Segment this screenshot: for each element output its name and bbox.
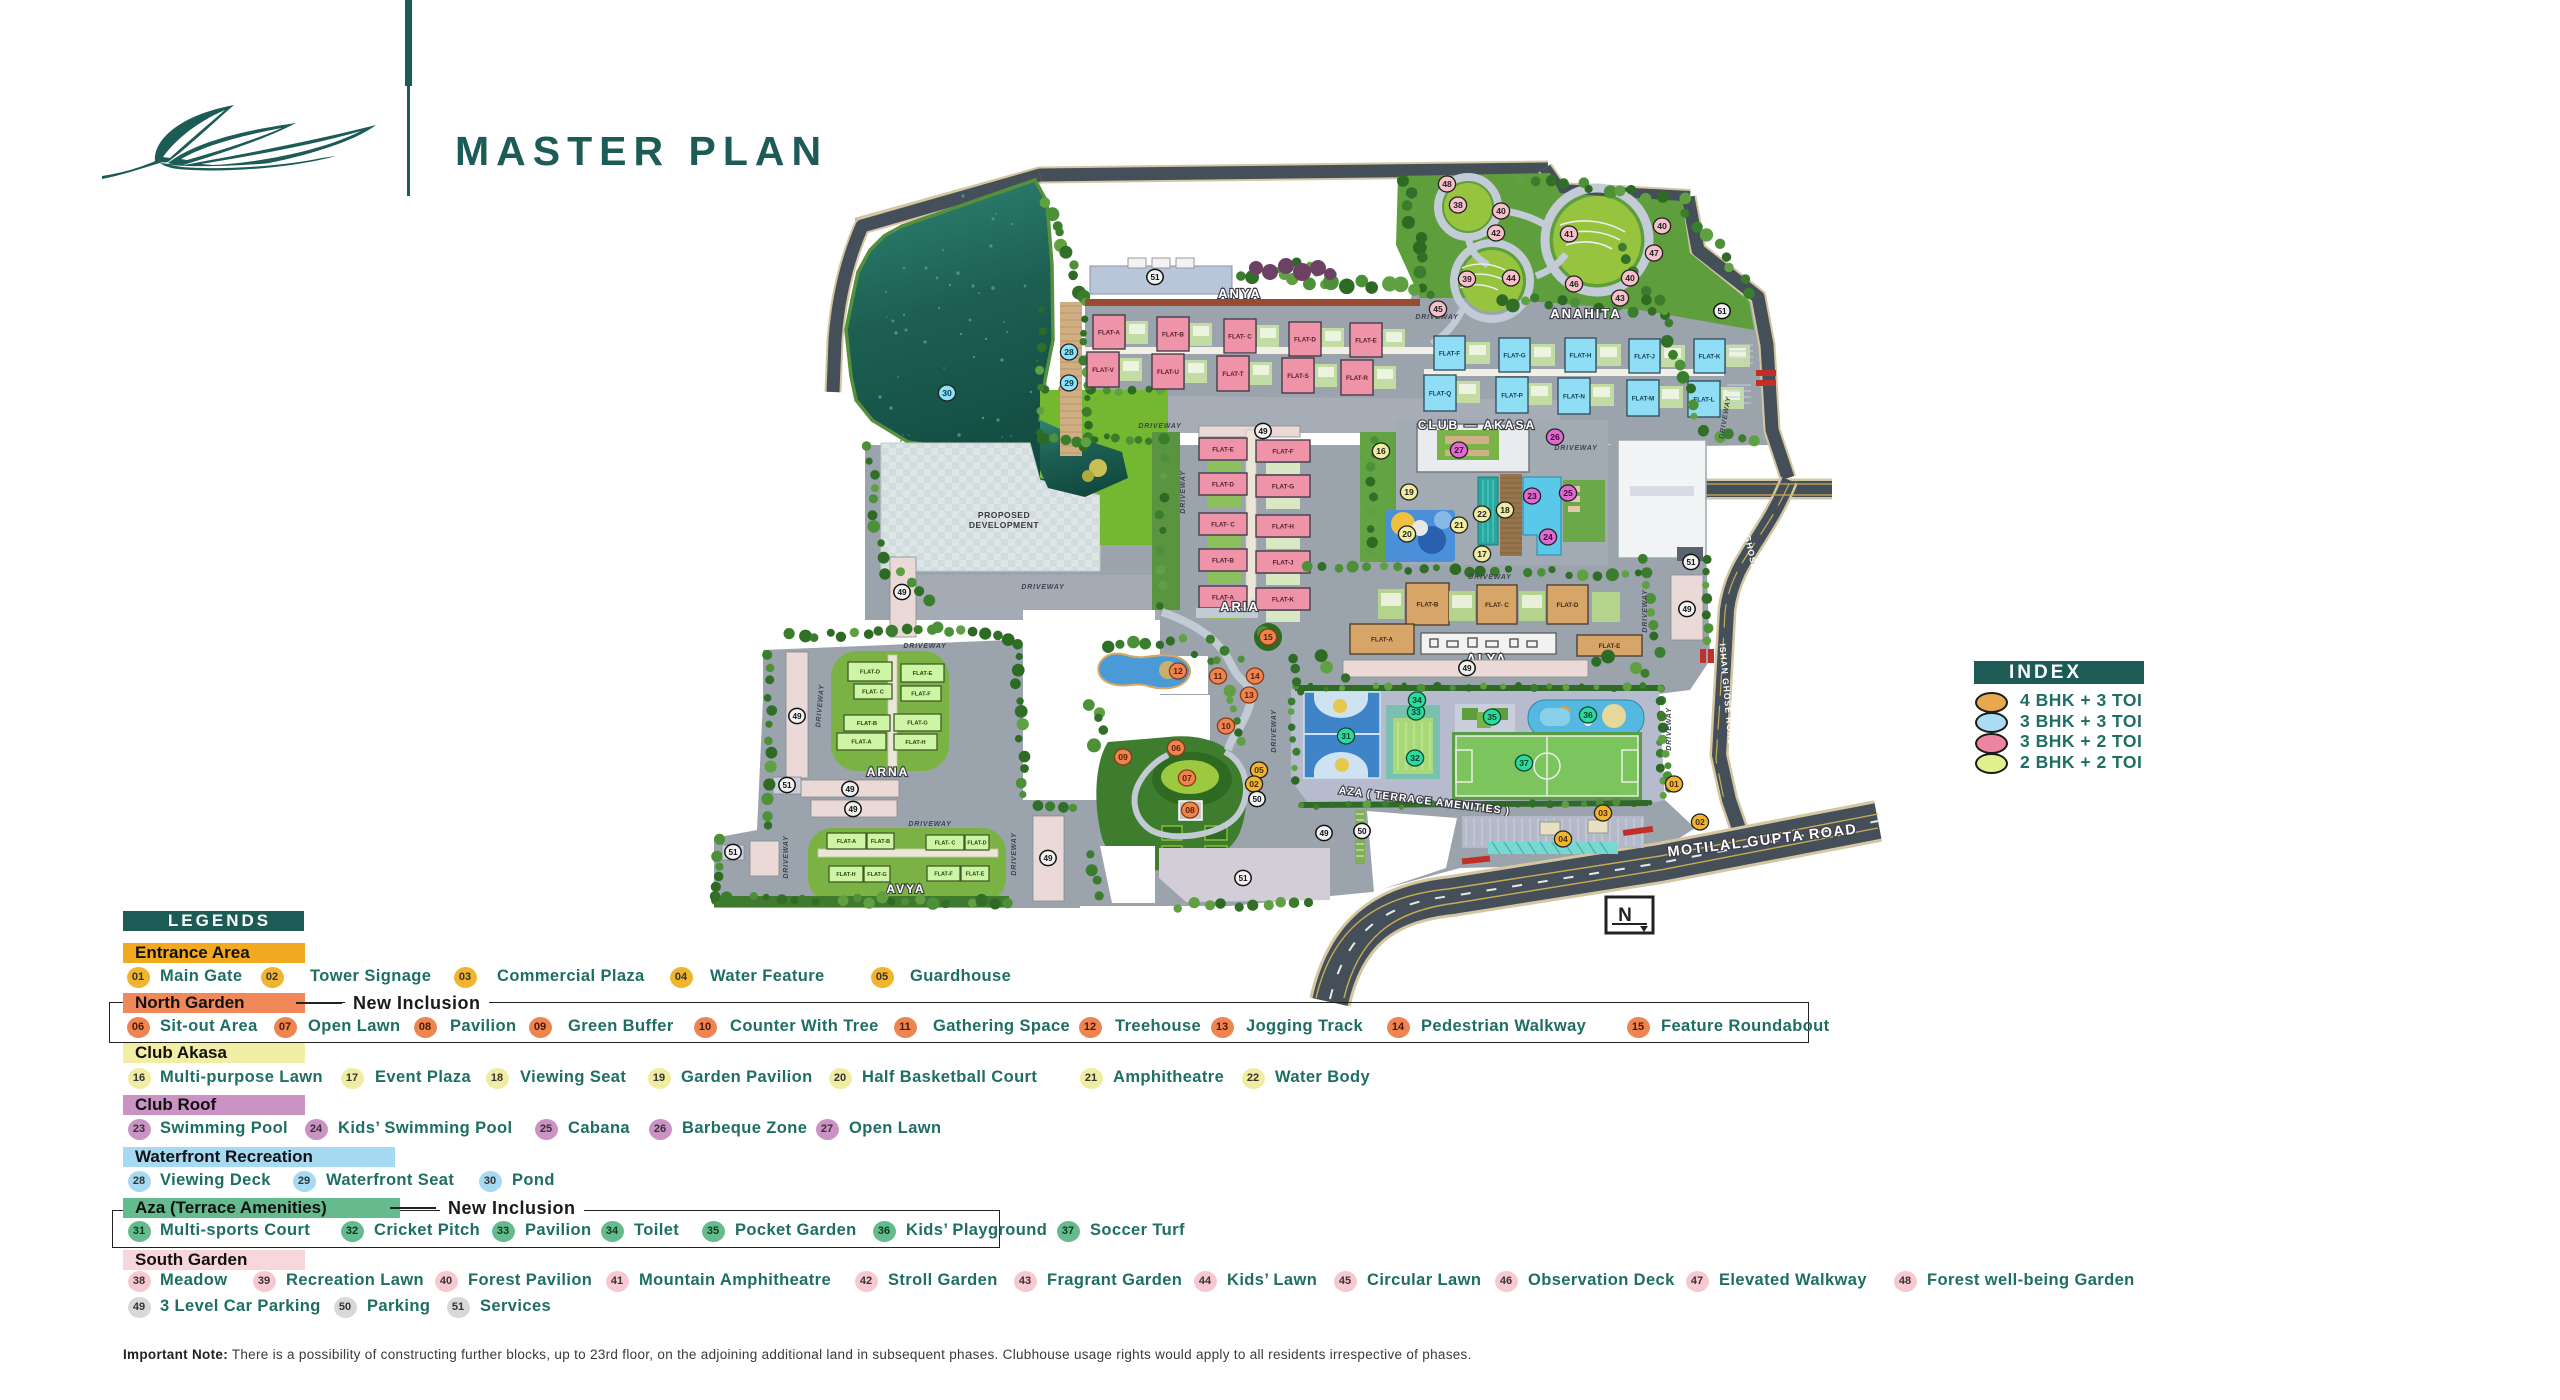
- svg-text:14: 14: [1250, 671, 1260, 681]
- svg-text:FLAT-R: FLAT-R: [1346, 375, 1368, 382]
- svg-text:ARNA: ARNA: [867, 765, 910, 779]
- svg-text:47: 47: [1649, 248, 1659, 258]
- svg-text:FLAT-A: FLAT-A: [837, 839, 856, 845]
- svg-text:FLAT-E: FLAT-E: [913, 671, 933, 677]
- svg-text:51: 51: [1686, 558, 1696, 567]
- svg-text:38: 38: [1453, 200, 1463, 210]
- svg-text:FLAT-U: FLAT-U: [1157, 369, 1179, 376]
- svg-text:08: 08: [1185, 805, 1195, 815]
- svg-text:ANAHITA: ANAHITA: [1550, 306, 1622, 321]
- svg-text:FLAT-B: FLAT-B: [1162, 331, 1184, 338]
- svg-text:03: 03: [1598, 808, 1608, 818]
- svg-text:ARIA: ARIA: [1220, 599, 1260, 614]
- svg-text:FLAT- C: FLAT- C: [862, 690, 885, 696]
- svg-text:DRIVEWAY: DRIVEWAY: [783, 835, 790, 879]
- svg-text:FLAT-G: FLAT-G: [867, 872, 886, 878]
- svg-text:FLAT-H: FLAT-H: [1570, 352, 1592, 359]
- svg-text:50: 50: [1252, 795, 1262, 804]
- svg-text:18: 18: [1500, 505, 1510, 515]
- svg-text:09: 09: [1118, 752, 1128, 762]
- svg-text:51: 51: [1717, 307, 1727, 316]
- svg-text:FLAT-G: FLAT-G: [1503, 352, 1525, 359]
- svg-text:39: 39: [1462, 274, 1472, 284]
- svg-text:51: 51: [1238, 874, 1248, 883]
- svg-text:23: 23: [1527, 491, 1537, 501]
- svg-text:12: 12: [1173, 666, 1183, 676]
- svg-text:49: 49: [792, 712, 802, 721]
- svg-text:AVYA: AVYA: [886, 882, 925, 896]
- svg-text:43: 43: [1615, 293, 1625, 303]
- svg-text:35: 35: [1487, 712, 1497, 722]
- svg-text:20: 20: [1402, 529, 1412, 539]
- svg-text:40: 40: [1496, 206, 1506, 216]
- svg-text:FLAT-H: FLAT-H: [905, 740, 925, 746]
- svg-text:40: 40: [1625, 273, 1635, 283]
- svg-text:FLAT-F: FLAT-F: [934, 872, 953, 878]
- svg-text:22: 22: [1477, 509, 1487, 519]
- svg-text:26: 26: [1550, 432, 1560, 442]
- svg-text:05: 05: [1254, 765, 1264, 775]
- svg-text:FLAT- C: FLAT- C: [935, 841, 956, 847]
- svg-text:FLAT-G: FLAT-G: [907, 721, 928, 727]
- svg-text:DRIVEWAY: DRIVEWAY: [1138, 423, 1182, 430]
- svg-text:19: 19: [1404, 487, 1414, 497]
- svg-text:24: 24: [1543, 532, 1553, 542]
- svg-text:FLAT-D: FLAT-D: [967, 841, 986, 847]
- svg-text:FLAT-G: FLAT-G: [1272, 483, 1294, 490]
- svg-text:FLAT-K: FLAT-K: [1272, 596, 1294, 603]
- svg-text:37: 37: [1519, 758, 1529, 768]
- svg-text:16: 16: [1376, 446, 1386, 456]
- svg-text:DRIVEWAY: DRIVEWAY: [1468, 574, 1512, 581]
- svg-text:DRIVEWAY: DRIVEWAY: [908, 821, 952, 828]
- svg-text:49: 49: [1043, 854, 1053, 863]
- svg-text:51: 51: [1150, 273, 1160, 282]
- svg-text:49: 49: [848, 805, 858, 814]
- svg-text:42: 42: [1491, 228, 1501, 238]
- svg-text:44: 44: [1506, 273, 1516, 283]
- svg-text:51: 51: [728, 848, 738, 857]
- svg-text:FLAT-B: FLAT-B: [871, 839, 890, 845]
- svg-text:ANYA: ANYA: [1218, 286, 1262, 301]
- svg-text:10: 10: [1221, 721, 1231, 731]
- svg-text:17: 17: [1477, 549, 1487, 559]
- svg-text:FLAT- C: FLAT- C: [1228, 333, 1252, 340]
- svg-text:FLAT-V: FLAT-V: [1092, 367, 1114, 374]
- svg-text:49: 49: [1258, 427, 1268, 436]
- svg-text:45: 45: [1433, 304, 1443, 314]
- svg-text:FLAT-P: FLAT-P: [1501, 392, 1523, 399]
- svg-text:34: 34: [1412, 695, 1422, 705]
- svg-text:FLAT-D: FLAT-D: [1557, 602, 1579, 609]
- svg-text:40: 40: [1657, 221, 1667, 231]
- svg-text:FLAT-A: FLAT-A: [1098, 329, 1120, 336]
- svg-text:FLAT-B: FLAT-B: [857, 721, 877, 727]
- svg-text:49: 49: [1462, 664, 1472, 673]
- svg-text:PROPOSED: PROPOSED: [978, 510, 1030, 520]
- svg-text:15: 15: [1263, 632, 1273, 642]
- svg-text:46: 46: [1569, 279, 1579, 289]
- svg-text:N: N: [1618, 905, 1632, 926]
- svg-text:02: 02: [1695, 817, 1705, 827]
- svg-text:FLAT-H: FLAT-H: [836, 872, 855, 878]
- svg-text:29: 29: [1064, 378, 1074, 388]
- svg-text:28: 28: [1064, 347, 1074, 357]
- svg-text:25: 25: [1563, 488, 1573, 498]
- svg-text:FLAT-D: FLAT-D: [860, 670, 880, 676]
- svg-text:51: 51: [782, 781, 792, 790]
- svg-text:FLAT-E: FLAT-E: [1355, 337, 1377, 344]
- svg-text:FLAT-H: FLAT-H: [1272, 523, 1294, 530]
- svg-text:49: 49: [897, 588, 907, 597]
- svg-text:DRIVEWAY: DRIVEWAY: [1180, 470, 1187, 514]
- svg-text:31: 31: [1341, 731, 1351, 741]
- svg-text:49: 49: [1319, 829, 1329, 838]
- svg-text:FLAT-Q: FLAT-Q: [1429, 390, 1451, 397]
- svg-text:06: 06: [1171, 743, 1181, 753]
- svg-text:FLAT-D: FLAT-D: [1294, 336, 1316, 343]
- svg-text:DEVELOPMENT: DEVELOPMENT: [969, 520, 1040, 530]
- svg-text:FLAT-K: FLAT-K: [1699, 353, 1721, 360]
- svg-text:FLAT-D: FLAT-D: [1212, 481, 1234, 488]
- svg-text:41: 41: [1564, 229, 1574, 239]
- svg-text:FLAT-B: FLAT-B: [1417, 601, 1439, 608]
- svg-text:DRIVEWAY: DRIVEWAY: [1021, 584, 1065, 591]
- svg-text:FLAT-J: FLAT-J: [1273, 559, 1294, 566]
- svg-text:02: 02: [1249, 779, 1259, 789]
- svg-text:FLAT-E: FLAT-E: [966, 872, 985, 878]
- svg-text:27: 27: [1454, 445, 1464, 455]
- svg-text:FLAT- C: FLAT- C: [1485, 602, 1509, 609]
- svg-text:49: 49: [845, 785, 855, 794]
- svg-text:DRIVEWAY: DRIVEWAY: [1554, 445, 1598, 452]
- svg-text:04: 04: [1558, 834, 1568, 844]
- svg-text:49: 49: [1682, 605, 1692, 614]
- svg-text:DRIVEWAY: DRIVEWAY: [1271, 709, 1278, 753]
- svg-text:FLAT-S: FLAT-S: [1287, 373, 1309, 380]
- svg-text:FLAT-N: FLAT-N: [1563, 393, 1585, 400]
- svg-text:FLAT-J: FLAT-J: [1634, 353, 1655, 360]
- svg-text:FLAT- C: FLAT- C: [1211, 521, 1235, 528]
- svg-text:FLAT-E: FLAT-E: [1599, 643, 1621, 650]
- svg-text:FLAT-E: FLAT-E: [1212, 446, 1234, 453]
- svg-text:FLAT-F: FLAT-F: [1272, 448, 1293, 455]
- svg-text:DRIVEWAY: DRIVEWAY: [1666, 707, 1673, 751]
- svg-text:13: 13: [1244, 690, 1254, 700]
- svg-text:30: 30: [942, 388, 952, 398]
- svg-text:32: 32: [1410, 753, 1420, 763]
- svg-text:FLAT-T: FLAT-T: [1222, 371, 1243, 378]
- svg-text:DRIVEWAY: DRIVEWAY: [1011, 832, 1018, 876]
- svg-text:11: 11: [1213, 671, 1222, 681]
- svg-text:50: 50: [1357, 827, 1367, 836]
- svg-text:01: 01: [1669, 779, 1679, 789]
- svg-text:FLAT-M: FLAT-M: [1632, 395, 1655, 402]
- svg-text:FLAT-F: FLAT-F: [1439, 350, 1460, 357]
- svg-text:FLAT-A: FLAT-A: [851, 740, 872, 746]
- svg-text:48: 48: [1442, 179, 1452, 189]
- svg-text:DRIVEWAY: DRIVEWAY: [903, 643, 947, 650]
- svg-text:21: 21: [1454, 520, 1464, 530]
- svg-text:CLUB — AKASA: CLUB — AKASA: [1418, 418, 1536, 432]
- svg-text:36: 36: [1583, 710, 1593, 720]
- svg-text:FLAT-A: FLAT-A: [1371, 636, 1393, 643]
- svg-text:DRIVEWAY: DRIVEWAY: [1642, 589, 1649, 633]
- svg-text:07: 07: [1182, 773, 1192, 783]
- svg-text:FLAT-B: FLAT-B: [1212, 557, 1234, 564]
- svg-text:FLAT-F: FLAT-F: [911, 692, 931, 698]
